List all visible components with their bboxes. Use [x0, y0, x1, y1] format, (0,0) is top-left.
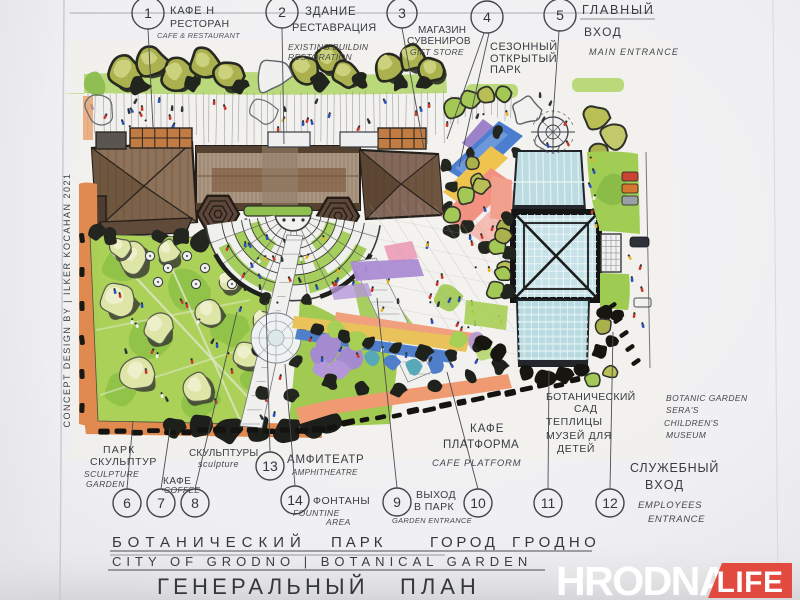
svg-text:ПЛАТФОРМА: ПЛАТФОРМА [443, 439, 519, 451]
svg-text:ENTRANCE: ENTRANCE [648, 514, 705, 525]
svg-text:12: 12 [602, 495, 618, 511]
svg-text:АМФИТЕАТР: АМФИТЕАТР [287, 454, 365, 466]
svg-text:ГЛАВНЫЙ: ГЛАВНЫЙ [582, 2, 655, 17]
svg-text:ГЕНЕРАЛЬНЫЙ: ГЕНЕРАЛЬНЫЙ [157, 574, 369, 599]
svg-text:ВХОД: ВХОД [584, 25, 622, 39]
svg-text:GARDEN: GARDEN [86, 479, 125, 489]
svg-text:ЗДАНИЕ: ЗДАНИЕ [305, 6, 356, 18]
svg-text:CITY OF GRODNO | BOTANICAL GAR: CITY OF GRODNO | BOTANICAL GARDEN [112, 554, 532, 569]
svg-text:СКУЛЬПТУРЫ: СКУЛЬПТУРЫ [189, 448, 258, 459]
svg-text:EXISTING BUILDIN: EXISTING BUILDIN [288, 42, 369, 52]
svg-text:2: 2 [278, 4, 286, 20]
svg-text:MUSEUM: MUSEUM [666, 430, 707, 440]
svg-text:AREA: AREA [325, 517, 351, 527]
svg-text:ВХОД: ВХОД [645, 478, 685, 492]
svg-text:ФОНТАНЫ: ФОНТАНЫ [313, 495, 370, 507]
svg-text:БОТАНИЧЕСКИЙ: БОТАНИЧЕСКИЙ [112, 533, 307, 551]
svg-text:CONCEPT DESIGN BY | ILKER KOCA: CONCEPT DESIGN BY | ILKER KOCAHAN 2021 [62, 172, 72, 427]
svg-text:МАГАЗИН: МАГАЗИН [418, 25, 466, 36]
svg-text:LIFE: LIFE [717, 566, 784, 599]
svg-text:GIFT STORE: GIFT STORE [410, 47, 464, 57]
svg-text:9: 9 [393, 494, 401, 510]
svg-text:КАФЕ Н: КАФЕ Н [170, 5, 215, 17]
svg-text:5: 5 [556, 7, 564, 23]
svg-text:В ПАРК: В ПАРК [414, 501, 454, 513]
svg-text:CAFE & RESTAURANT: CAFE & RESTAURANT [157, 31, 241, 40]
svg-text:sculpture: sculpture [198, 459, 239, 469]
svg-text:4: 4 [483, 9, 491, 25]
svg-text:CHILDREN'S: CHILDREN'S [664, 418, 719, 428]
svg-text:11: 11 [541, 495, 556, 511]
svg-text:ГРОДНО: ГРОДНО [512, 534, 600, 551]
svg-text:РЕСТОРАН: РЕСТОРАН [170, 18, 229, 30]
svg-text:СЕЗОННЫЙ: СЕЗОННЫЙ [490, 40, 558, 53]
svg-text:1: 1 [144, 5, 152, 21]
svg-text:13: 13 [262, 458, 278, 474]
svg-text:RESTORATION: RESTORATION [288, 52, 352, 62]
svg-text:SERA'S: SERA'S [666, 405, 699, 415]
svg-text:ТЕПЛИЦЫ: ТЕПЛИЦЫ [546, 416, 603, 428]
svg-text:3: 3 [398, 5, 406, 21]
svg-text:СКУЛЬПТУР: СКУЛЬПТУР [90, 456, 157, 468]
svg-text:ГОРОД: ГОРОД [430, 534, 499, 551]
svg-text:ПАРК: ПАРК [490, 64, 521, 76]
svg-text:GARDEN ENTRANCE: GARDEN ENTRANCE [392, 516, 473, 525]
svg-text:6: 6 [123, 495, 131, 511]
svg-text:SCULPTURE: SCULPTURE [84, 469, 139, 479]
svg-text:EMPLOYEES: EMPLOYEES [638, 500, 702, 511]
svg-text:САД: САД [574, 403, 598, 415]
svg-text:ПЛАН: ПЛАН [400, 574, 481, 599]
svg-text:РЕСТАВРАЦИЯ: РЕСТАВРАЦИЯ [292, 22, 377, 34]
svg-text:14: 14 [287, 492, 303, 508]
svg-text:8: 8 [191, 495, 199, 511]
svg-text:MAIN ENTRANCE: MAIN ENTRANCE [589, 47, 679, 57]
svg-text:HRODNA: HRODNA [556, 558, 728, 600]
svg-text:10: 10 [470, 495, 486, 511]
svg-text:BOTANIC GARDEN: BOTANIC GARDEN [666, 393, 748, 403]
svg-text:7: 7 [157, 495, 165, 511]
svg-text:СЛУЖЕБНЫЙ: СЛУЖЕБНЫЙ [630, 460, 719, 475]
svg-text:МУЗЕЙ ДЛЯ: МУЗЕЙ ДЛЯ [546, 429, 612, 442]
svg-text:ПАРК: ПАРК [331, 534, 387, 551]
svg-text:CAFE PLATFORM: CAFE PLATFORM [432, 458, 521, 469]
svg-text:ВЫХОД: ВЫХОД [416, 489, 456, 501]
svg-text:СУВЕНИРОВ: СУВЕНИРОВ [407, 36, 471, 47]
svg-text:КАФЕ: КАФЕ [470, 423, 504, 435]
svg-text:ПАРК: ПАРК [103, 444, 135, 456]
svg-text:AMPHITHEATRE: AMPHITHEATRE [291, 468, 358, 477]
svg-text:БОТАНИЧЕСКИЙ: БОТАНИЧЕСКИЙ [546, 390, 636, 403]
svg-text:ДЕТЕЙ: ДЕТЕЙ [557, 442, 595, 455]
